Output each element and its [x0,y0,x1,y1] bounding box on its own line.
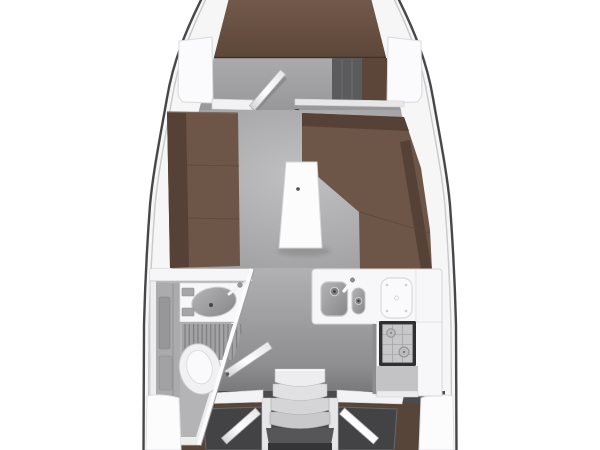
galley-cabinet-side [373,324,377,394]
icebox-hinge [386,310,389,313]
forward-bulkhead-port [212,99,253,110]
starboard-berth-side [362,58,387,101]
stove-burner-1-center [390,332,392,334]
hanging-locker [332,58,362,100]
port-side-deck [146,395,181,450]
head-faucet-spout [238,283,243,288]
saloon-table [279,162,322,248]
port-berth-pod [178,37,213,103]
galley-cabinet [377,366,418,393]
head-locker-door [159,297,170,349]
table-fitting [296,187,300,191]
vanity-fitting [182,308,194,316]
companionway-base [266,428,334,445]
starboard-side-deck [419,395,454,450]
head-bulkhead-top [150,269,252,281]
floor-plan-image [0,0,600,450]
companionway-step-1 [275,369,325,387]
icebox-hinge [386,284,389,287]
icebox-hinge [405,310,408,313]
stove-burner-2-center [403,351,405,353]
galley-cabinet-front [377,391,418,397]
drain-dot [333,290,336,293]
galley-faucet-spout [350,278,354,282]
v-berth-cushion [214,0,386,57]
head-door-hinge [226,372,230,376]
icebox-lid [381,278,412,318]
washbasin-drain [209,303,213,307]
floor-plan-canvas [0,0,600,450]
vanity-fitting [182,288,194,296]
drain-dot [357,300,359,302]
icebox-hinge [405,284,408,287]
port-settee-backrest [167,112,189,268]
stove-top [383,325,413,363]
starboard-berth-pod [387,37,422,103]
companionway-base-shadow [268,443,332,450]
head-locker-drawer [159,356,172,390]
